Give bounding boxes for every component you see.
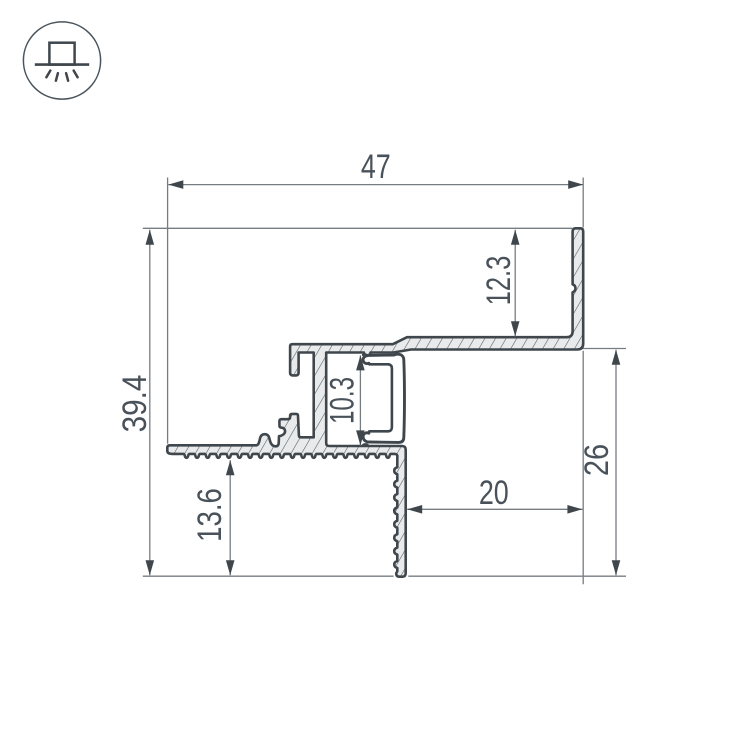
- svg-text:47: 47: [361, 147, 391, 186]
- svg-text:13.6: 13.6: [190, 488, 229, 542]
- svg-text:12.3: 12.3: [480, 256, 518, 306]
- svg-text:39.4: 39.4: [115, 375, 154, 433]
- svg-text:26: 26: [576, 444, 615, 476]
- svg-text:20: 20: [479, 473, 509, 512]
- svg-text:10.3: 10.3: [323, 377, 361, 424]
